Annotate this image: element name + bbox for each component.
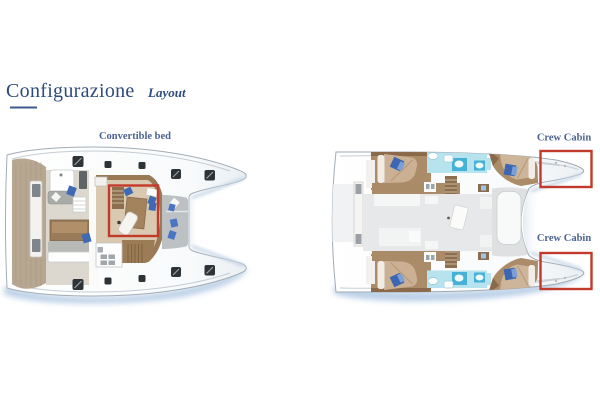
svg-text:Configurazione: Configurazione: [6, 80, 135, 102]
svg-text:Crew Cabin: Crew Cabin: [537, 233, 592, 244]
svg-text:Convertible bed: Convertible bed: [99, 131, 171, 142]
svg-text:Crew Cabin: Crew Cabin: [537, 133, 592, 144]
svg-text:Layout: Layout: [147, 85, 186, 100]
